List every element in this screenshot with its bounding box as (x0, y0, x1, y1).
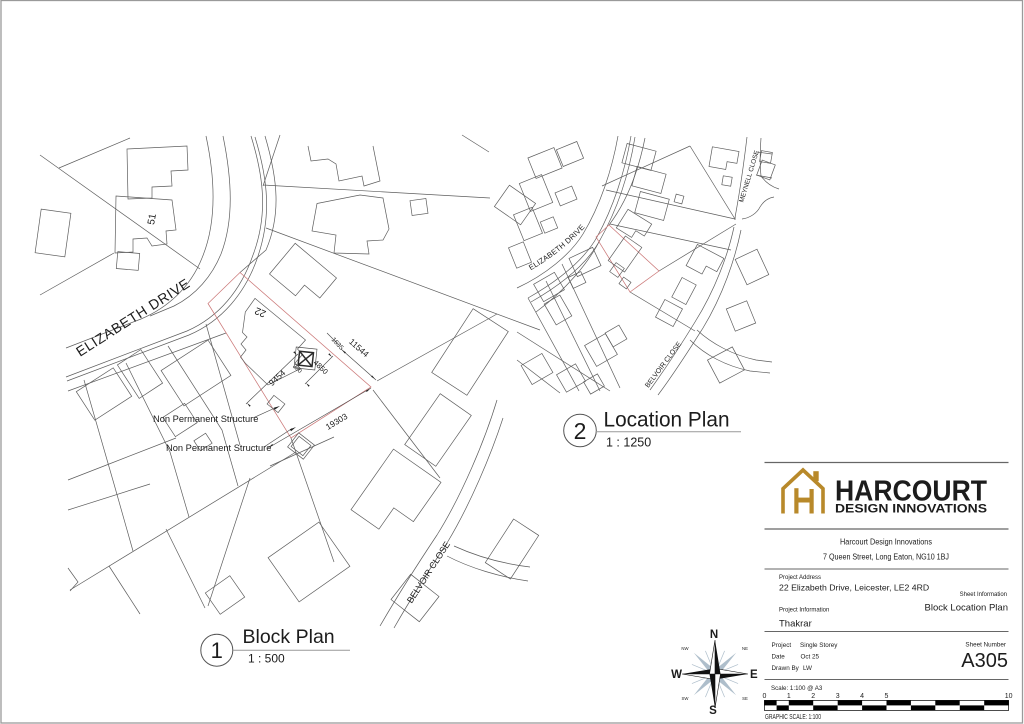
svg-text:DESIGN INNOVATIONS: DESIGN INNOVATIONS (835, 502, 987, 516)
svg-text:4: 4 (860, 693, 864, 700)
svg-text:11544: 11544 (347, 336, 371, 359)
svg-text:2: 2 (811, 693, 815, 700)
svg-text:ELIZABETH DRIVE: ELIZABETH DRIVE (73, 275, 193, 360)
svg-text:Project Address: Project Address (779, 575, 821, 581)
svg-text:SW: SW (682, 696, 690, 701)
svg-text:Non Permanent Structure: Non Permanent Structure (153, 414, 258, 424)
svg-text:51: 51 (146, 212, 159, 225)
svg-text:NW: NW (681, 646, 689, 651)
svg-text:Sheet Information: Sheet Information (960, 592, 1007, 598)
svg-text:Block Plan: Block Plan (243, 626, 335, 648)
svg-text:N: N (710, 629, 718, 641)
svg-text:Non Permanent Structure: Non Permanent Structure (166, 443, 271, 453)
svg-text:W: W (671, 669, 682, 681)
svg-text:Drawn By: Drawn By (772, 665, 800, 672)
svg-text:1: 1 (211, 638, 223, 663)
svg-text:S: S (709, 705, 717, 717)
svg-text:22: 22 (253, 304, 268, 319)
svg-text:Thakrar: Thakrar (779, 619, 812, 630)
svg-text:9454: 9454 (267, 368, 288, 388)
svg-text:5: 5 (885, 693, 889, 700)
svg-text:ELIZABETH DRIVE: ELIZABETH DRIVE (527, 222, 586, 272)
svg-text:0: 0 (762, 693, 766, 700)
svg-text:3: 3 (836, 693, 840, 700)
svg-text:Block Location Plan: Block Location Plan (925, 603, 1008, 614)
svg-text:Scale: 1:100 @ A3: Scale: 1:100 @ A3 (771, 685, 823, 692)
svg-text:Sheet Number: Sheet Number (965, 642, 1006, 649)
svg-text:GRAPHIC SCALE: 1:100: GRAPHIC SCALE: 1:100 (765, 712, 821, 721)
svg-text:Oct 25: Oct 25 (801, 654, 820, 661)
svg-text:10: 10 (1005, 693, 1013, 700)
svg-text:Date: Date (772, 654, 786, 661)
svg-text:2: 2 (574, 418, 587, 444)
svg-text:Harcourt Design Innovations: Harcourt Design Innovations (840, 538, 932, 547)
svg-text:NE: NE (742, 646, 748, 651)
svg-text:19303: 19303 (324, 411, 350, 432)
svg-text:4850: 4850 (312, 358, 330, 376)
svg-text:Project: Project (772, 642, 792, 649)
svg-text:Location Plan: Location Plan (604, 409, 730, 432)
svg-text:1 : 1250: 1 : 1250 (606, 436, 651, 450)
svg-text:1635: 1635 (330, 336, 345, 352)
svg-text:1 : 500: 1 : 500 (248, 652, 285, 666)
svg-text:SE: SE (742, 696, 748, 701)
svg-text:LW: LW (803, 665, 812, 672)
svg-text:A305: A305 (961, 650, 1008, 672)
svg-text:1: 1 (787, 693, 791, 700)
svg-text:BELVOIR CLOSE: BELVOIR CLOSE (405, 540, 452, 605)
svg-text:22 Elizabeth Drive, Leicester,: 22 Elizabeth Drive, Leicester, LE2 4RD (779, 583, 929, 593)
svg-text:Single Storey: Single Storey (800, 642, 838, 649)
svg-text:BELVOIR CLOSE: BELVOIR CLOSE (644, 341, 683, 390)
svg-text:7 Queen Street, Long Eaton, NG: 7 Queen Street, Long Eaton, NG10 1BJ (823, 553, 949, 562)
svg-text:E: E (750, 669, 758, 681)
svg-text:Project Information: Project Information (779, 608, 829, 614)
